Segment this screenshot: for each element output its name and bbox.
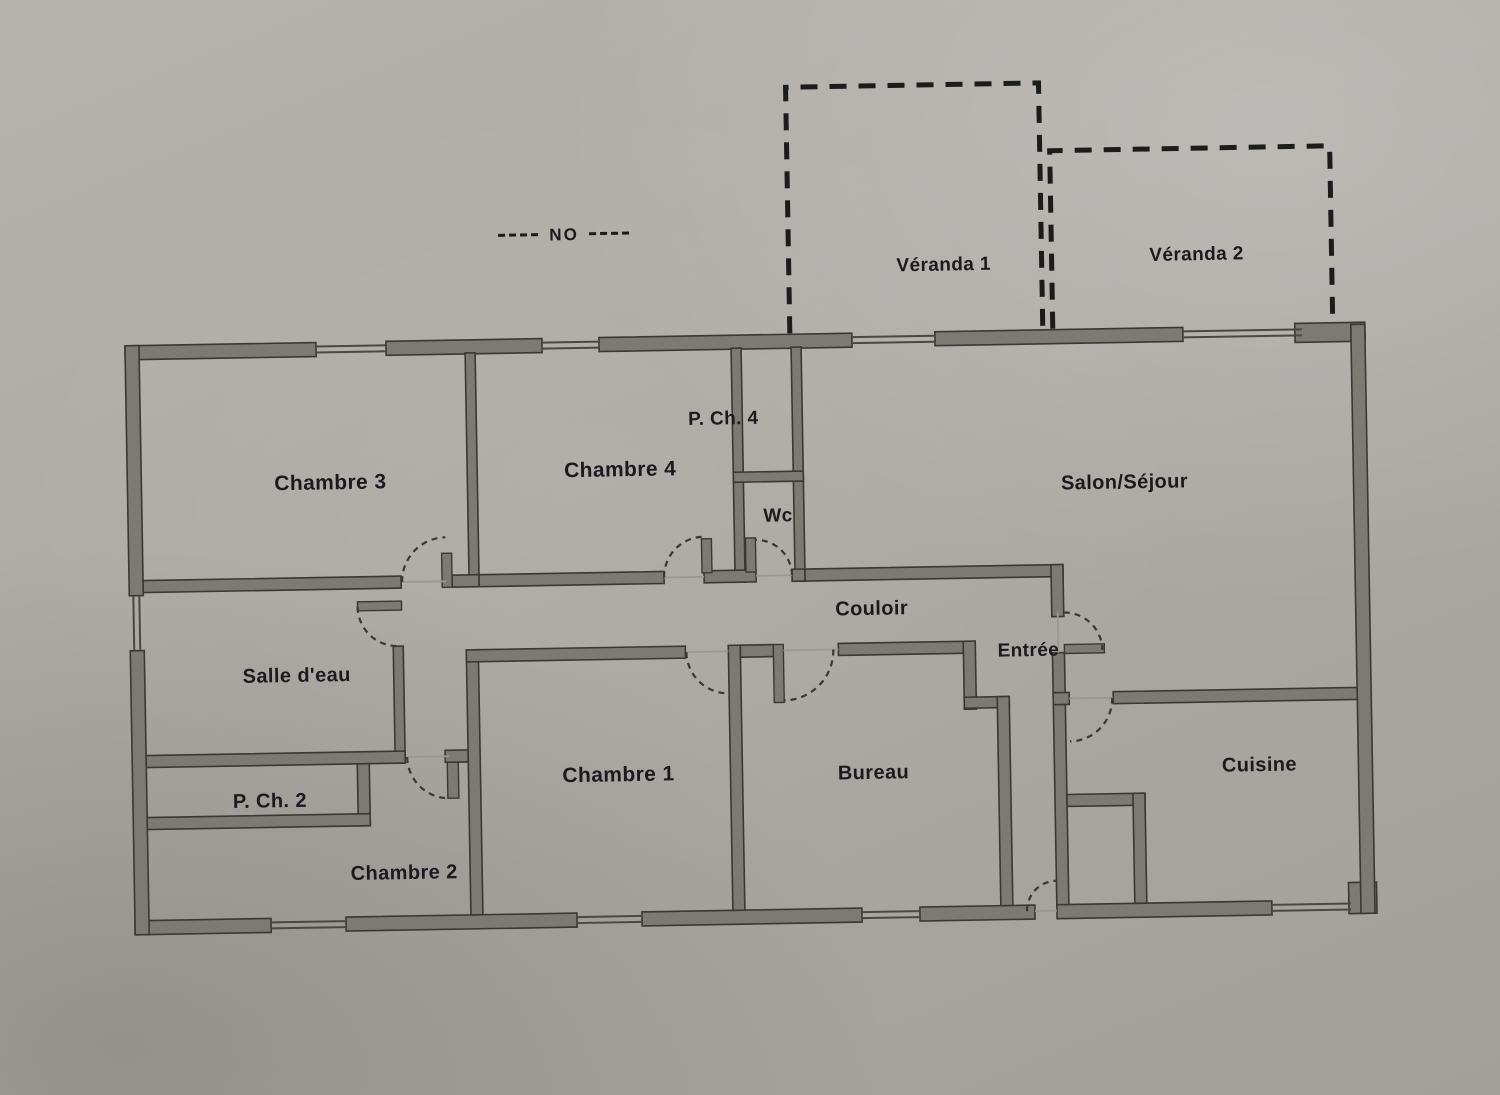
wall-salle-eau-east xyxy=(393,646,405,763)
door-arc-bureau xyxy=(783,650,834,701)
wall-pch4-wc-divider xyxy=(733,471,803,482)
room-label-salle-eau: Salle d'eau xyxy=(243,664,351,688)
door-arc-chambre-2 xyxy=(407,756,450,799)
wall-pch4-west xyxy=(731,348,745,582)
room-label-pch4: P. Ch. 4 xyxy=(688,408,759,430)
door-arc-chambre-4 xyxy=(663,537,704,578)
wall-pch2-south xyxy=(147,814,370,830)
room-label-salon: Salon/Séjour xyxy=(1061,470,1188,494)
door-arc-wc xyxy=(755,539,792,576)
wall-bureau-east-lower xyxy=(997,696,1013,905)
room-label-chambre-2: Chambre 2 xyxy=(351,861,458,885)
wall-cuisine-north xyxy=(1113,687,1357,703)
door-arc-salle-eau xyxy=(358,606,399,647)
door-arc-chambre-1 xyxy=(686,651,729,694)
veranda-1-outline xyxy=(786,83,1043,333)
compass-label: NO xyxy=(549,225,579,245)
wall-chambre1-west xyxy=(466,650,483,915)
door-arc-cuisine xyxy=(1069,698,1113,742)
room-label-couloir: Couloir xyxy=(835,597,908,620)
wall-salon-south xyxy=(805,565,1063,582)
room-label-pch2: P. Ch. 2 xyxy=(233,790,307,813)
room-label-chambre-1: Chambre 1 xyxy=(562,762,675,787)
floor-plan-svg: NO Véranda 1 Véranda 2 Chambre 3 Chambre… xyxy=(0,0,1500,1095)
room-label-bureau: Bureau xyxy=(838,761,910,784)
room-label-chambre-3: Chambre 3 xyxy=(274,470,387,495)
veranda-outlines xyxy=(786,78,1333,333)
room-label-entree: Entrée xyxy=(997,640,1059,662)
floor-plan-drawing: NO Véranda 1 Véranda 2 Chambre 3 Chambre… xyxy=(121,77,1377,935)
wall-entree-upper xyxy=(1051,565,1064,617)
room-label-wc: Wc xyxy=(763,505,793,527)
veranda-2-label: Véranda 2 xyxy=(1149,243,1244,266)
wall-chambre1-bureau xyxy=(728,645,745,910)
room-label-cuisine: Cuisine xyxy=(1222,753,1297,776)
veranda-2-outline xyxy=(1050,146,1333,329)
compass: NO xyxy=(498,224,632,245)
entree-door-leaf xyxy=(1064,644,1104,654)
veranda-1-label: Véranda 1 xyxy=(896,254,991,277)
room-label-chambre-4: Chambre 4 xyxy=(564,457,677,482)
wall-pch4-east xyxy=(791,347,805,581)
scanned-floor-plan-page: NO Véranda 1 Véranda 2 Chambre 3 Chambre… xyxy=(0,0,1500,1095)
wall-closet-east xyxy=(1133,793,1147,903)
door-arc-chambre-3 xyxy=(401,537,446,582)
wall-chambre3-chambre4 xyxy=(465,353,479,575)
wall-entree-lower xyxy=(1052,653,1068,905)
